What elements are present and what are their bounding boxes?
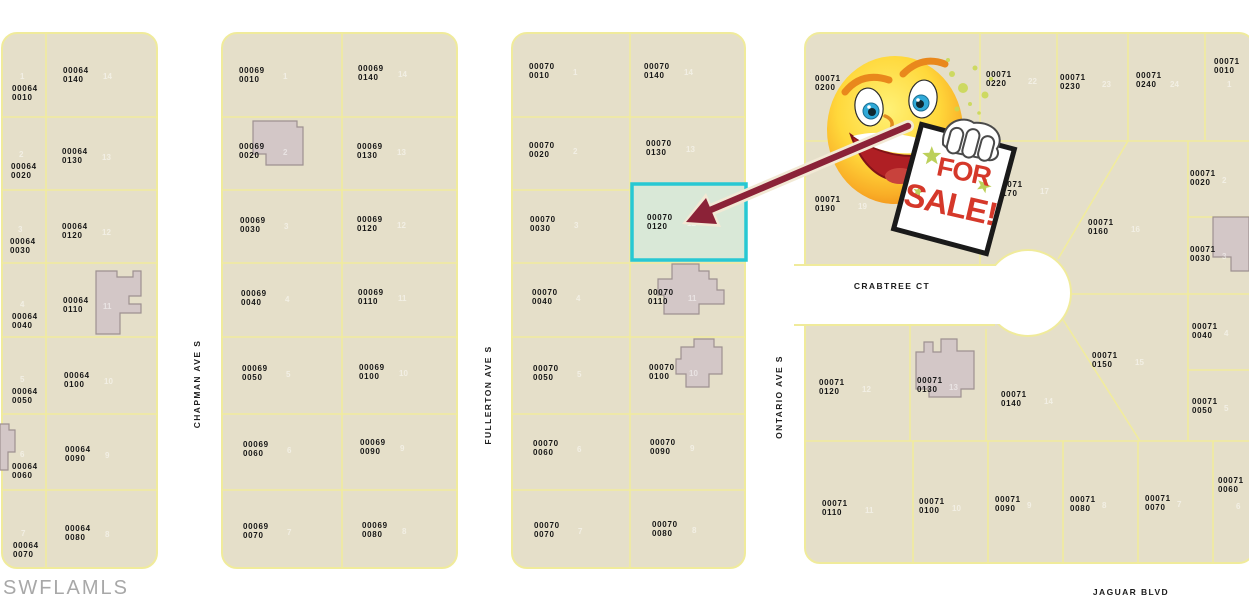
street-label: FULLERTON AVE S <box>483 345 493 444</box>
parcel-label: 000700020 <box>529 142 555 159</box>
lot-number: 12 <box>687 219 696 228</box>
lot-number: 22 <box>1028 77 1037 86</box>
street-label: ONTARIO AVE S <box>774 355 784 439</box>
parcel-label: 000700100 <box>649 364 675 381</box>
parcel-label: 000700050 <box>533 365 559 382</box>
plat-map: SWFLAMLS 0006400101000640020200064003030… <box>0 0 1249 600</box>
parcel-label: 000640060 <box>12 463 38 480</box>
lot-number: 11 <box>398 294 406 303</box>
lot-number: 4 <box>1224 329 1228 338</box>
street-label: CHAPMAN AVE S <box>192 340 202 429</box>
lot-number: 3 <box>574 221 578 230</box>
parcel-label: 000710240 <box>1136 72 1162 89</box>
lot-number: 15 <box>1135 358 1144 367</box>
lot-number: 2 <box>1222 176 1226 185</box>
parcel-label: 000700070 <box>534 522 560 539</box>
lot-number: 13 <box>949 383 958 392</box>
lot-number: 11 <box>103 302 111 311</box>
lot-number: 9 <box>1027 501 1031 510</box>
lot-number: 8 <box>402 527 406 536</box>
parcel-label: 000690110 <box>358 289 384 306</box>
lot-number: 12 <box>862 385 871 394</box>
parcel-label: 000640130 <box>62 148 88 165</box>
parcel-label: 000710070 <box>1145 495 1171 512</box>
lot-number: 10 <box>399 369 408 378</box>
parcel-label: 000710190 <box>815 196 841 213</box>
lot-number: 11 <box>865 506 873 515</box>
lot-number: 9 <box>105 451 109 460</box>
parcel-label: 000710090 <box>995 496 1021 513</box>
lot-number: 2 <box>573 147 577 156</box>
parcel-label: 000710030 <box>1190 246 1216 263</box>
parcel-label: 000710010 <box>1214 58 1240 75</box>
parcel-label: 000640070 <box>13 542 39 559</box>
parcel-label: 000640100 <box>64 372 90 389</box>
parcel-label: 000700090 <box>650 439 676 456</box>
lot-number: 7 <box>21 529 25 538</box>
parcel-label: 000690060 <box>243 441 269 458</box>
parcel-label: 000690040 <box>241 290 267 307</box>
mls-watermark: SWFLAMLS <box>3 577 129 600</box>
lot-number: 7 <box>1177 500 1181 509</box>
parcel-label: 000640110 <box>63 297 89 314</box>
lot-number: 6 <box>287 446 291 455</box>
lot-number: 11 <box>688 294 696 303</box>
lot-number: 7 <box>578 527 582 536</box>
parcel-label: 000640030 <box>10 238 36 255</box>
parcel-label: 000690020 <box>239 143 265 160</box>
lot-number: 5 <box>20 375 24 384</box>
lot-number: 12 <box>397 221 406 230</box>
lot-number: 4 <box>20 300 24 309</box>
parcel-label: 000710220 <box>986 71 1012 88</box>
lot-number: 8 <box>105 530 109 539</box>
lot-number: 14 <box>398 70 407 79</box>
parcel-label: 000710040 <box>1192 323 1218 340</box>
parcel-label: 000700130 <box>646 140 672 157</box>
parcel-label: 000710230 <box>1060 74 1086 91</box>
lot-number: 1 <box>283 72 287 81</box>
parcel-label: 000700140 <box>644 63 670 80</box>
lot-number: 1 <box>20 72 24 81</box>
parcel-label: 000700120 <box>647 214 673 231</box>
lot-number: 3 <box>1222 252 1226 261</box>
lot-number: 14 <box>684 68 693 77</box>
parcel-label: 000700030 <box>530 216 556 233</box>
lot-number: 3 <box>284 222 288 231</box>
parcel-label: 000710120 <box>819 379 845 396</box>
lot-number: 9 <box>690 444 694 453</box>
parcel-label: 000710150 <box>1092 352 1118 369</box>
lot-number: 17 <box>1040 187 1049 196</box>
parcel-label: 000640090 <box>65 446 91 463</box>
lot-number: 19 <box>858 202 867 211</box>
parcel-label: 000690130 <box>357 143 383 160</box>
parcel-label: 000640020 <box>11 163 37 180</box>
parcel-label: 000710050 <box>1192 398 1218 415</box>
parcel-label: 000690080 <box>362 522 388 539</box>
lot-number: 13 <box>102 153 111 162</box>
lot-number: 24 <box>1170 80 1179 89</box>
parcel-label: 000640010 <box>12 85 38 102</box>
labels-layer: SWFLAMLS 0006400101000640020200064003030… <box>0 0 1249 600</box>
lot-number: 13 <box>397 148 406 157</box>
lot-number: 8 <box>692 526 696 535</box>
parcel-label: 000640140 <box>63 67 89 84</box>
lot-number: 5 <box>577 370 581 379</box>
parcel-label: 000710100 <box>919 498 945 515</box>
parcel-label: 000700110 <box>648 289 674 306</box>
parcel-label: 000700040 <box>532 289 558 306</box>
parcel-label: 000700010 <box>529 63 555 80</box>
parcel-label: 000690120 <box>357 216 383 233</box>
parcel-label: 000690030 <box>240 217 266 234</box>
parcel-label: 000710080 <box>1070 496 1096 513</box>
parcel-label: 000710160 <box>1088 219 1114 236</box>
lot-number: 1 <box>573 68 577 77</box>
parcel-label: 000690050 <box>242 365 268 382</box>
parcel-label: 000690010 <box>239 67 265 84</box>
lot-number: 14 <box>1044 397 1053 406</box>
lot-number: 1 <box>1227 80 1231 89</box>
parcel-label: 000700080 <box>652 521 678 538</box>
lot-number: 2 <box>19 150 23 159</box>
lot-number: 9 <box>400 444 404 453</box>
parcel-label: 000690100 <box>359 364 385 381</box>
lot-number: 8 <box>1102 501 1106 510</box>
lot-number: 16 <box>1131 225 1140 234</box>
lot-number: 14 <box>103 72 112 81</box>
lot-number: 5 <box>1224 404 1228 413</box>
parcel-label: 000640120 <box>62 223 88 240</box>
lot-number: 5 <box>286 370 290 379</box>
parcel-label: 000690140 <box>358 65 384 82</box>
parcel-label: 000640050 <box>12 388 38 405</box>
street-label: CRABTREE CT <box>854 281 930 291</box>
parcel-label: 000700060 <box>533 440 559 457</box>
parcel-label: 000710110 <box>822 500 848 517</box>
lot-number: 4 <box>285 295 289 304</box>
parcel-label: 000710170 <box>997 181 1023 198</box>
lot-number: 20 <box>858 81 867 90</box>
lot-number: 6 <box>577 445 581 454</box>
street-label: JAGUAR BLVD <box>1093 587 1169 597</box>
lot-number: 4 <box>576 294 580 303</box>
parcel-label: 000690070 <box>243 523 269 540</box>
lot-number: 23 <box>1102 80 1111 89</box>
parcel-label: 000710140 <box>1001 391 1027 408</box>
parcel-label: 000710200 <box>815 75 841 92</box>
lot-number: 7 <box>287 528 291 537</box>
lot-number: 6 <box>20 450 24 459</box>
parcel-label: 000640040 <box>12 313 38 330</box>
parcel-label: 000710060 <box>1218 477 1244 494</box>
parcel-label: 000640080 <box>65 525 91 542</box>
lot-number: 2 <box>283 148 287 157</box>
parcel-label: 000710130 <box>917 377 943 394</box>
parcel-label: 000690090 <box>360 439 386 456</box>
lot-number: 10 <box>952 504 961 513</box>
lot-number: 10 <box>689 369 698 378</box>
lot-number: 10 <box>104 377 113 386</box>
lot-number: 13 <box>686 145 695 154</box>
lot-number: 3 <box>18 225 22 234</box>
lot-number: 12 <box>102 228 111 237</box>
lot-number: 6 <box>1236 502 1240 511</box>
parcel-label: 000710020 <box>1190 170 1216 187</box>
